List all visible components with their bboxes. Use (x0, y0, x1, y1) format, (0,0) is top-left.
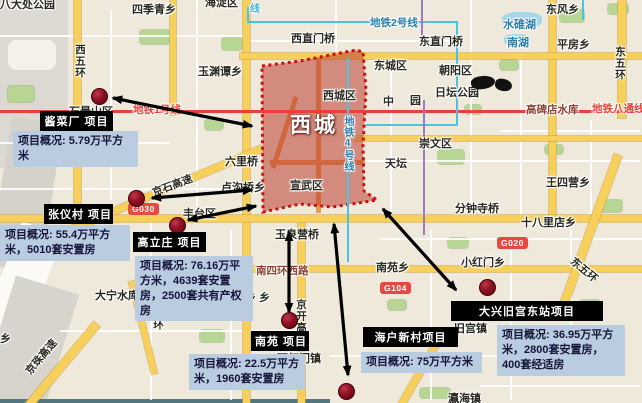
marker-daxing[interactable] (479, 279, 496, 296)
project-info-zhangyicun: 项目概况: 55.4万平方米，5010套安置房 (0, 225, 130, 261)
marker-haihuxincun[interactable] (338, 383, 355, 400)
project-info-nanyuan: 项目概况: 22.5万平方米，1960套安置房 (189, 354, 305, 390)
beijing-project-map[interactable]: 八大处公园 四季青乡 海淀区 西直门桥 东直门桥 东风乡 平房乡 水碓湖 南湖 … (0, 0, 642, 403)
arrow-jiangcaichang (113, 98, 252, 126)
project-plate-daxing: 大兴旧宫东站项目 (451, 301, 603, 321)
project-plate-nanyuan: 南苑 项目 (251, 331, 309, 351)
arrow-gaolizhuang (188, 206, 256, 220)
project-info-haihuxincun: 项目概况: 75万平方米 (361, 352, 482, 373)
arrow-haihuxincun (334, 224, 348, 375)
project-plate-gaolizhuang: 高立庄 项目 (133, 232, 206, 252)
project-info-daxing: 项目概况: 36.95万平方米，2800套安置房，400套经适房 (497, 325, 625, 376)
marker-jiangcaichang[interactable] (91, 88, 108, 105)
arrow-zhangyicun (152, 190, 252, 198)
marker-zhangyicun[interactable] (128, 190, 145, 207)
project-plate-jiangcaichang: 酱菜厂 项目 (40, 111, 113, 131)
project-info-jiangcaichang: 项目概况: 5.79万平方米 (13, 131, 138, 167)
arrow-daxing (383, 209, 456, 290)
project-plate-zhangyicun: 张仪村 项目 (44, 204, 113, 224)
project-plate-haihuxincun: 海户新村项目 (363, 327, 458, 347)
project-info-gaolizhuang: 项目概况: 76.16万平方米，4639套安置房，2500套共有产权房 (135, 256, 253, 321)
marker-nanyuan[interactable] (281, 312, 298, 329)
